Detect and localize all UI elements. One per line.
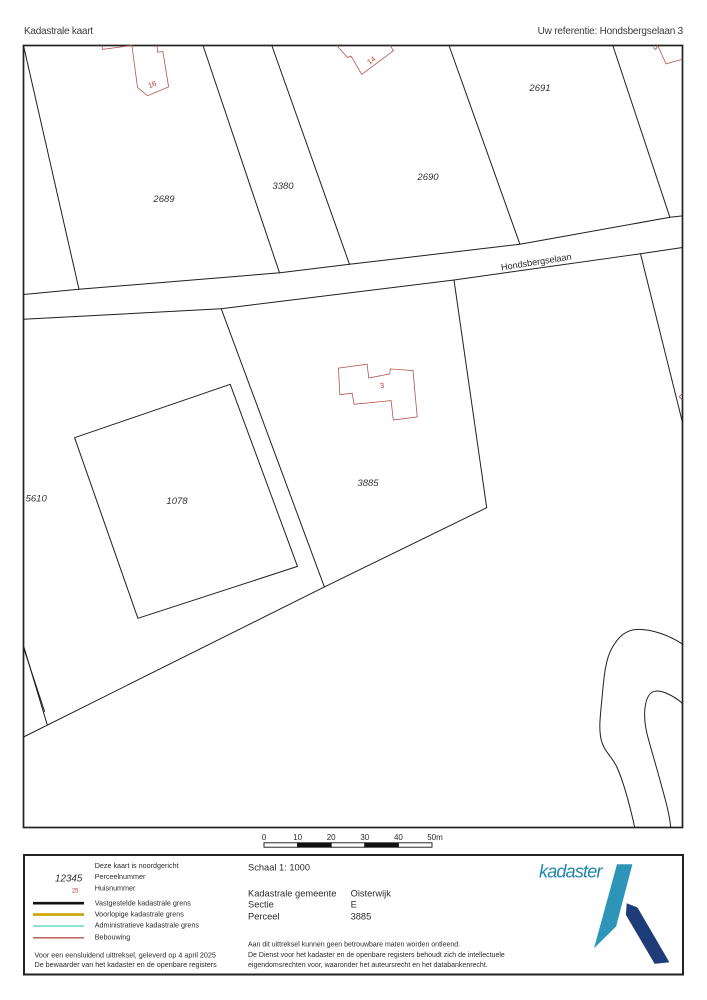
svg-text:Kadastrale kaart: Kadastrale kaart (24, 26, 93, 37)
svg-text:1078: 1078 (166, 496, 188, 507)
svg-text:50m: 50m (427, 833, 443, 842)
svg-text:De Dienst voor het kadaster en: De Dienst voor het kadaster en de openba… (248, 952, 505, 959)
svg-text:3885: 3885 (351, 911, 372, 921)
svg-text:Deze kaart is noordgericht: Deze kaart is noordgericht (95, 861, 179, 870)
svg-text:Voor een eensluidend uittrekse: Voor een eensluidend uittreksel, gelever… (35, 951, 216, 960)
svg-text:40: 40 (394, 833, 403, 842)
svg-text:12345: 12345 (55, 874, 83, 885)
svg-text:20: 20 (327, 833, 336, 842)
svg-text:5610: 5610 (26, 494, 48, 505)
svg-text:Sectie: Sectie (248, 900, 274, 910)
svg-text:10: 10 (293, 833, 302, 842)
svg-text:Huisnummer: Huisnummer (95, 883, 136, 892)
svg-text:Perceelnummer: Perceelnummer (95, 872, 146, 881)
svg-text:2689: 2689 (152, 194, 175, 205)
svg-text:Uw referentie: Hondsbergselaan: Uw referentie: Hondsbergselaan 3 (538, 26, 684, 37)
svg-text:0: 0 (262, 833, 267, 842)
svg-text:30: 30 (360, 833, 369, 842)
svg-text:Voorlopige kadastrale grens: Voorlopige kadastrale grens (95, 909, 185, 918)
svg-text:Oisterwijk: Oisterwijk (351, 889, 392, 899)
svg-text:3380: 3380 (272, 181, 294, 192)
svg-text:Vastgestelde kadastrale grens: Vastgestelde kadastrale grens (95, 898, 192, 907)
svg-text:E: E (351, 900, 357, 910)
svg-text:Administratieve kadastrale gre: Administratieve kadastrale grens (95, 921, 200, 930)
svg-text:kadaster: kadaster (539, 862, 603, 882)
svg-text:Perceel: Perceel (248, 911, 280, 921)
svg-text:Schaal 1: 1000: Schaal 1: 1000 (248, 862, 310, 872)
svg-text:2690: 2690 (416, 172, 439, 183)
svg-text:Aan dit uittreksel kunnen geen: Aan dit uittreksel kunnen geen betrouwba… (248, 942, 460, 949)
svg-text:Kadastrale gemeente: Kadastrale gemeente (248, 889, 336, 899)
svg-text:3885: 3885 (357, 478, 379, 489)
svg-text:eigendomsrechten voor, waarond: eigendomsrechten voor, waaronder het aut… (248, 962, 488, 969)
svg-text:2691: 2691 (528, 83, 550, 94)
svg-text:Bebouwing: Bebouwing (95, 932, 131, 941)
svg-text:25: 25 (72, 889, 79, 895)
svg-text:De bewaarder van het kadaster: De bewaarder van het kadaster en de open… (35, 960, 218, 969)
